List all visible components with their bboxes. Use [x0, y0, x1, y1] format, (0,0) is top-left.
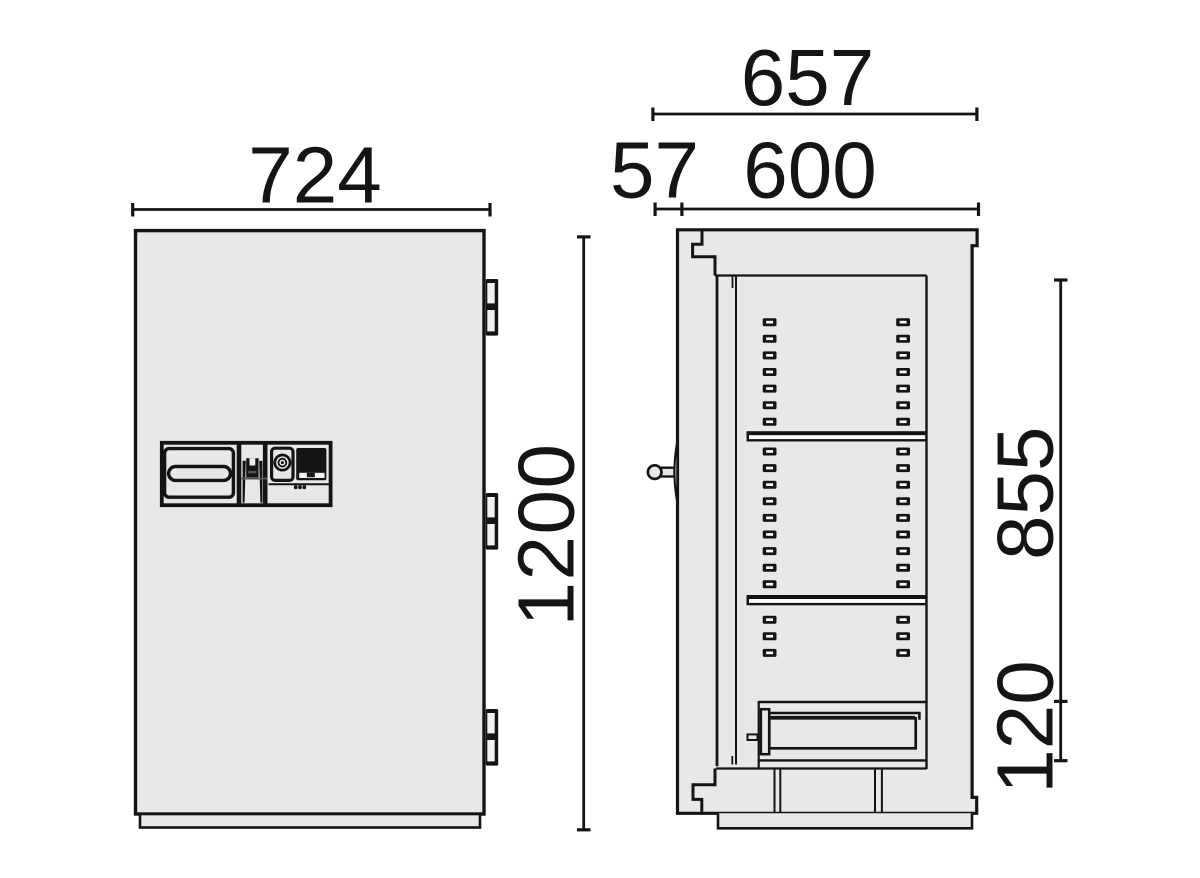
svg-text:657: 657 [741, 33, 874, 122]
svg-text:724: 724 [248, 131, 381, 220]
svg-text:600: 600 [743, 126, 876, 215]
svg-text:855: 855 [980, 427, 1069, 560]
svg-text:57: 57 [610, 126, 699, 215]
svg-text:120: 120 [980, 660, 1069, 793]
svg-text:1200: 1200 [502, 443, 591, 627]
